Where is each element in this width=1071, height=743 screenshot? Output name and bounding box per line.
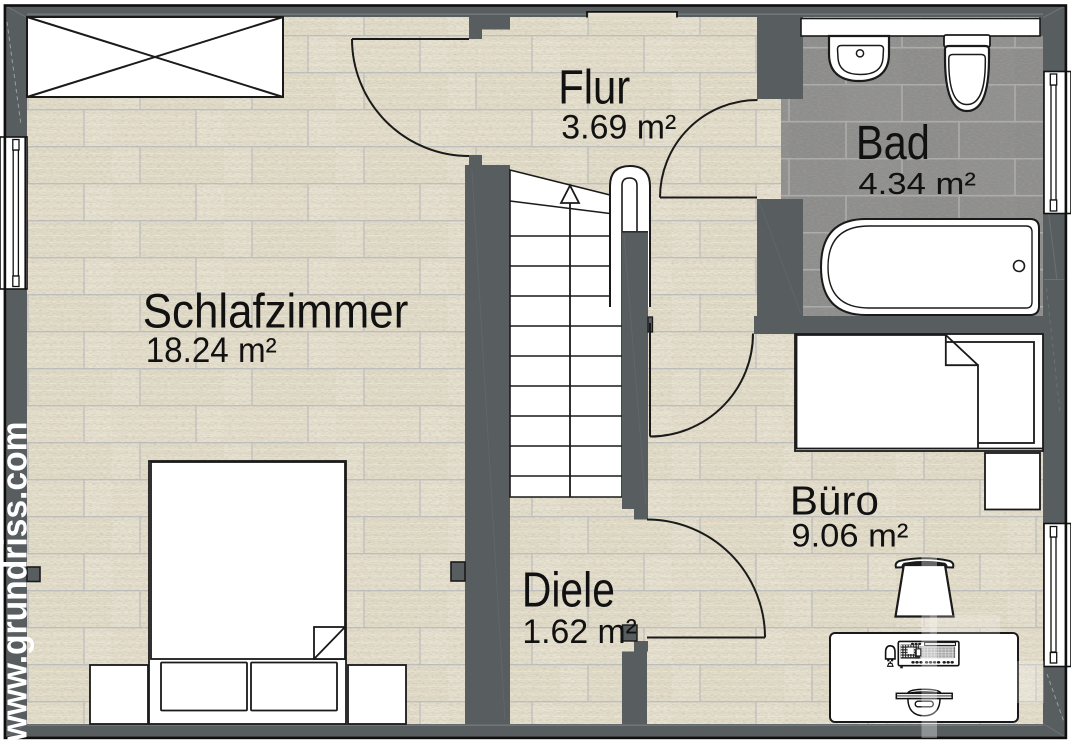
svg-text:www.grundriss.com: www.grundriss.com [0, 422, 35, 743]
svg-text:Bad: Bad [856, 116, 930, 170]
svg-text:18.24 m²: 18.24 m² [146, 331, 277, 370]
svg-text:4.34 m²: 4.34 m² [858, 167, 976, 201]
svg-text:Flur: Flur [558, 61, 630, 115]
svg-text:3.69 m²: 3.69 m² [561, 109, 676, 147]
svg-text:1.62 m²: 1.62 m² [522, 613, 637, 651]
svg-text:Diele: Diele [522, 563, 615, 617]
svg-text:9.06 m²: 9.06 m² [791, 517, 908, 554]
